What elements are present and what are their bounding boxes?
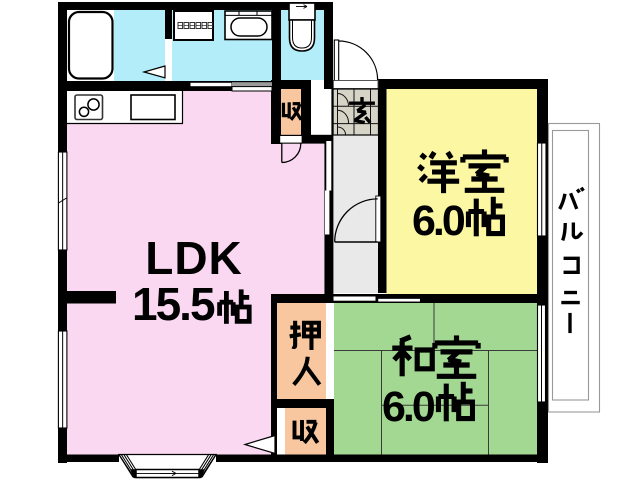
svg-text:6.0: 6.0 xyxy=(382,383,435,431)
svg-text:6.0: 6.0 xyxy=(412,197,465,245)
svg-text:LDK: LDK xyxy=(145,232,243,284)
svg-text:15.5: 15.5 xyxy=(132,278,215,330)
